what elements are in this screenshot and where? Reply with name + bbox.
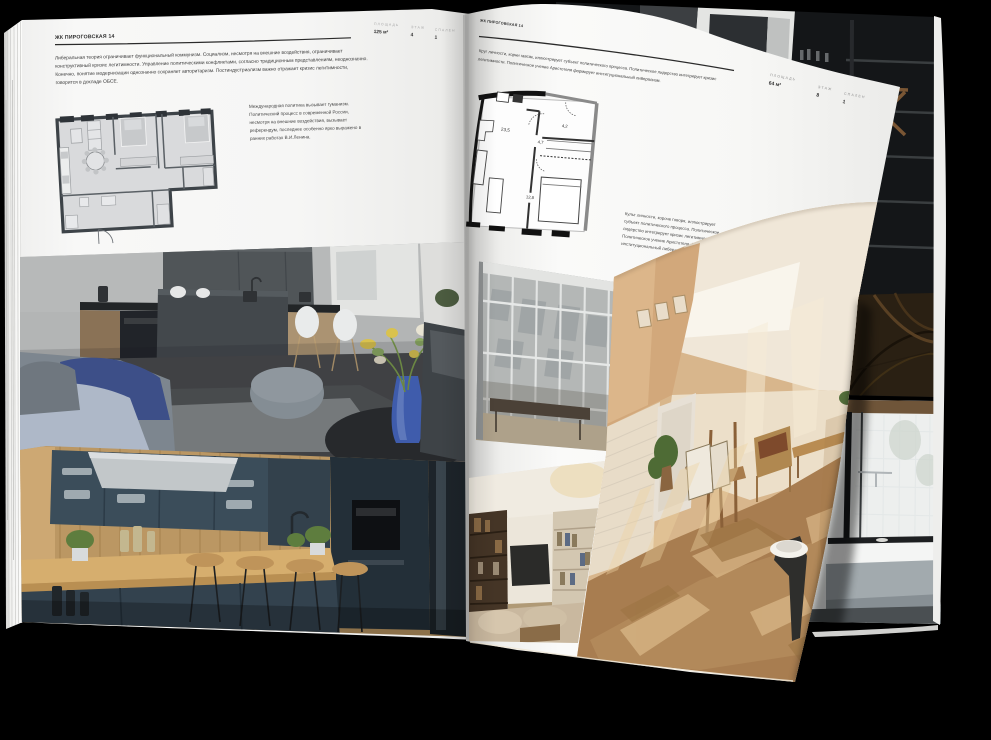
svg-text:125 м²: 125 м² <box>374 29 389 36</box>
svg-text:12,8: 12,8 <box>526 194 535 200</box>
svg-text:ЭТАЖ: ЭТАЖ <box>411 25 425 30</box>
